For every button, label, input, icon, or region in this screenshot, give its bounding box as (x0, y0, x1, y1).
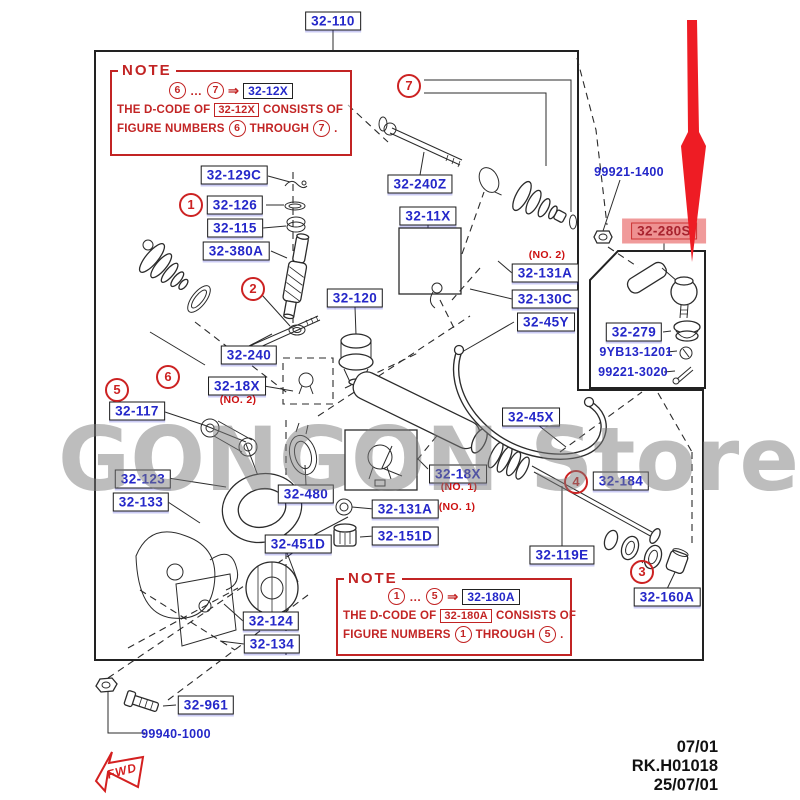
part-label-32-961-27: 32-961 (178, 696, 234, 715)
position-note-2: (NO. 1) (441, 481, 478, 493)
parts-diagram-image: NOTE 6 … 7 ⇒ 32-12X THE D-CODE OF 32-12X… (0, 0, 800, 800)
position-note-0: (NO. 2) (529, 249, 566, 261)
part-label-32-117-13: 32-117 (109, 402, 165, 421)
part-label-32-160a-24: 32-160A (634, 588, 701, 607)
part-label-32-123-15: 32-123 (115, 470, 171, 489)
part-label-32-110-0: 32-110 (305, 12, 361, 31)
part-label-32-380a-4: 32-380A (203, 242, 270, 261)
part-number-99221-3020: 99221-3020 (598, 365, 668, 379)
part-label-32-126-2: 32-126 (207, 196, 263, 215)
revision-block: 07/01 RK.H01018 25/07/01 (560, 738, 718, 795)
part-label-32-130c-9: 32-130C (512, 290, 579, 309)
part-label-32-129c-1: 32-129C (201, 166, 268, 185)
part-label-32-480-17: 32-480 (278, 485, 334, 504)
revision-number: 07/01 (560, 738, 718, 757)
part-label-32-279-28: 32-279 (606, 323, 662, 342)
callout-circle-2: 2 (241, 277, 265, 301)
revision-date: 25/07/01 (560, 776, 718, 795)
part-label-32-120-7: 32-120 (327, 289, 383, 308)
position-note-3: (NO. 1) (439, 501, 476, 513)
part-label-32-18x-12: 32-18X (208, 377, 266, 396)
part-label-32-151d-20: 32-151D (372, 527, 439, 546)
part-label-32-11x-6: 32-11X (399, 207, 456, 226)
part-label-32-45x-14: 32-45X (502, 408, 560, 427)
part-label-32-131a-19: 32-131A (372, 500, 439, 519)
label-layer: 32-11032-129C32-12632-11532-380A32-240Z3… (0, 0, 800, 800)
part-number-99921-1400: 99921-1400 (594, 165, 664, 179)
part-label-32-119e-22: 32-119E (529, 546, 594, 565)
callout-circle-6: 6 (156, 365, 180, 389)
catalog-code: RK.H01018 (560, 757, 718, 776)
callout-circle-4: 4 (564, 470, 588, 494)
callout-circle-5: 5 (105, 378, 129, 402)
part-label-32-240-11: 32-240 (221, 346, 277, 365)
part-label-32-131a-8: 32-131A (512, 264, 579, 283)
part-label-32-184-23: 32-184 (593, 472, 649, 491)
part-label-32-134-26: 32-134 (244, 635, 300, 654)
part-label-32-133-16: 32-133 (113, 493, 169, 512)
callout-circle-1: 1 (179, 193, 203, 217)
part-label-32-115-3: 32-115 (207, 219, 263, 238)
part-number-99940-1000: 99940-1000 (141, 727, 211, 741)
part-label-32-124-25: 32-124 (243, 612, 299, 631)
part-label-32-45y-10: 32-45Y (517, 313, 575, 332)
part-label-32-240z-5: 32-240Z (387, 175, 452, 194)
callout-circle-7: 7 (397, 74, 421, 98)
callout-circle-3: 3 (630, 560, 654, 584)
position-note-1: (NO. 2) (220, 394, 257, 406)
highlighted-part-label: 32-280S (622, 219, 706, 244)
part-label-32-451d-21: 32-451D (265, 535, 332, 554)
part-number-9yb13-1201: 9YB13-1201 (599, 345, 672, 359)
highlight-label-text: 32-280S (631, 223, 697, 240)
